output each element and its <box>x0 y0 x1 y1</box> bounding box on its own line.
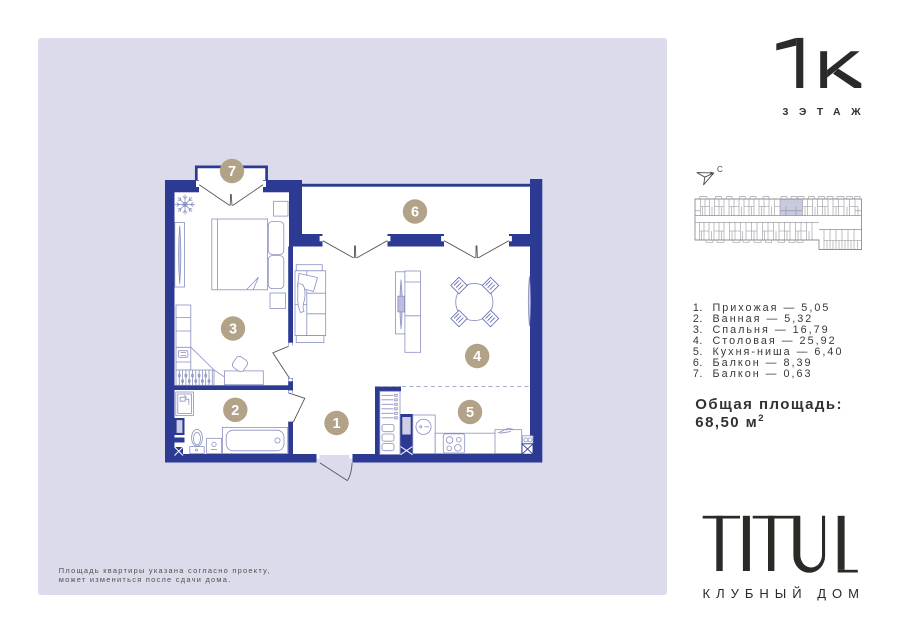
svg-text:3: 3 <box>229 322 237 338</box>
svg-text:4: 4 <box>473 349 481 365</box>
svg-text:2: 2 <box>231 403 239 419</box>
svg-text:1: 1 <box>332 416 340 432</box>
svg-text:6: 6 <box>411 205 419 221</box>
svg-text:7: 7 <box>228 164 236 180</box>
svg-text:5: 5 <box>466 405 474 421</box>
